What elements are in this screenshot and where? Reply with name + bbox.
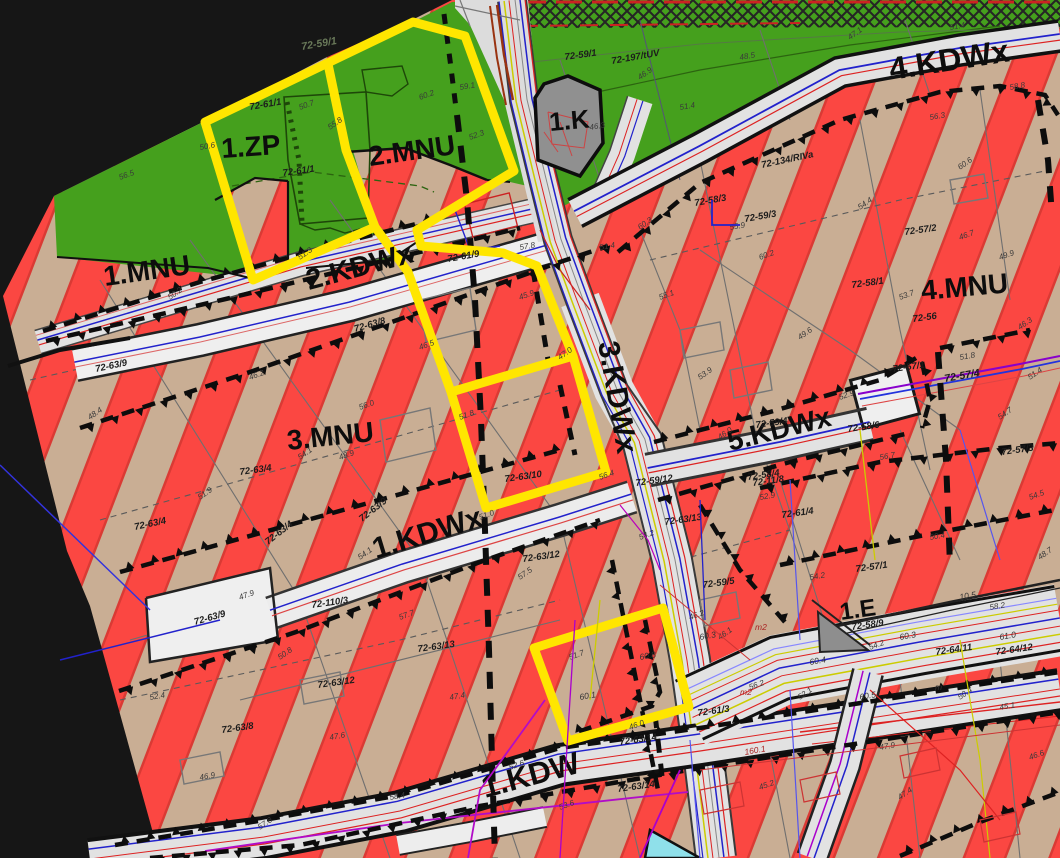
svg-text:1.ZP: 1.ZP (220, 129, 281, 164)
svg-text:m2: m2 (740, 687, 752, 697)
svg-text:1.K: 1.K (548, 104, 591, 137)
svg-text:m: m (935, 682, 942, 692)
svg-text:m2: m2 (755, 622, 767, 632)
